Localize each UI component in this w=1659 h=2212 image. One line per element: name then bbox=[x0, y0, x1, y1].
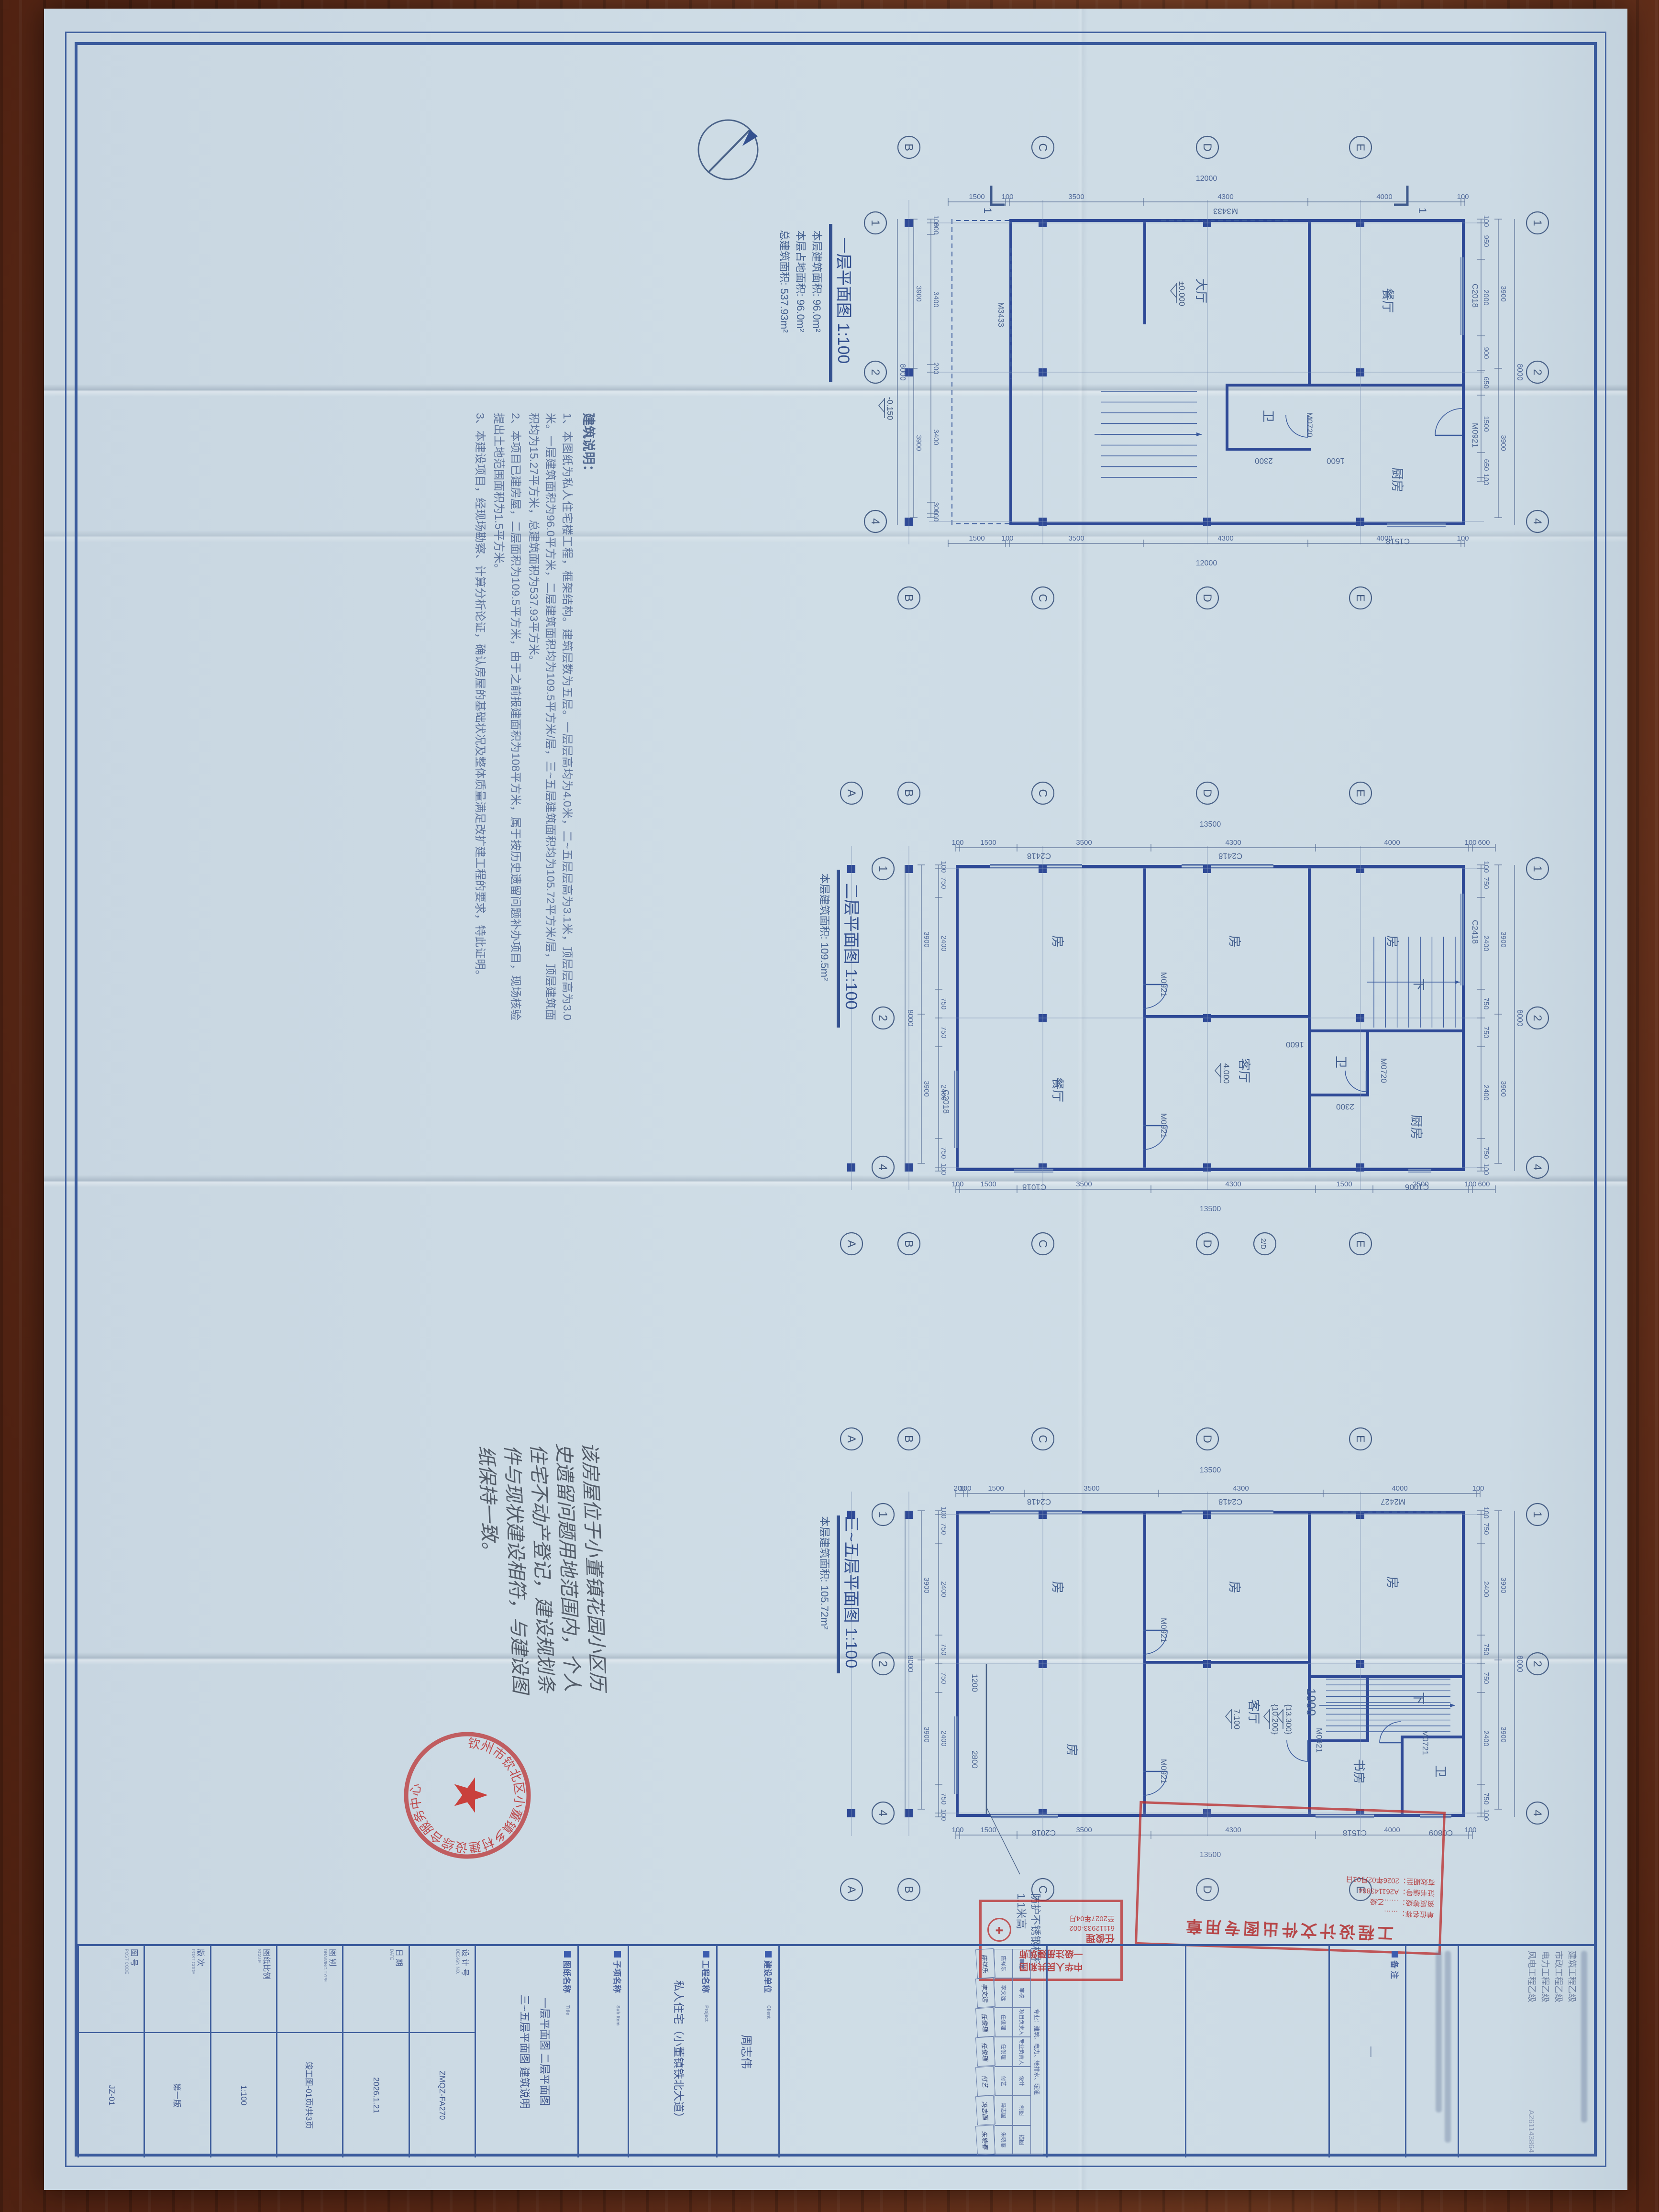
svg-text:房: 房 bbox=[1385, 1576, 1400, 1589]
signature-role: 描图 bbox=[1013, 2125, 1031, 2155]
svg-text:C: C bbox=[1036, 789, 1049, 797]
svg-text:1600: 1600 bbox=[1327, 456, 1345, 465]
svg-text:B: B bbox=[902, 789, 915, 797]
svg-text:750: 750 bbox=[940, 877, 948, 889]
svg-text:750: 750 bbox=[940, 1672, 948, 1684]
svg-text:E: E bbox=[1354, 789, 1367, 797]
svg-text:950: 950 bbox=[1482, 235, 1490, 247]
svg-text:100: 100 bbox=[940, 1809, 948, 1821]
svg-text:M0921: M0921 bbox=[1159, 1113, 1168, 1138]
title-block-row: 图 别DRAWING TYPE 竣工图-01页/共3页 bbox=[276, 1946, 342, 2157]
signature-handwritten: 付艺 bbox=[975, 2066, 995, 2096]
svg-text:3500: 3500 bbox=[1068, 534, 1084, 542]
svg-text:2400: 2400 bbox=[940, 935, 948, 951]
svg-text:2400: 2400 bbox=[940, 1730, 948, 1746]
title-block-row-value: 第一版 bbox=[145, 2033, 210, 2157]
svg-text:-0.150: -0.150 bbox=[885, 397, 895, 420]
building-notes: 建筑说明： 1、本图纸为私人住宅楼工程，框架结构。建筑层数为五层。一层层高均为4… bbox=[470, 413, 599, 1020]
svg-text:A: A bbox=[845, 1240, 858, 1248]
title-block-row: 图纸比例SCALE 1:100 bbox=[210, 1946, 276, 2157]
svg-text:650: 650 bbox=[1482, 459, 1490, 471]
building-note-paragraph: 2、本项目已建房屋，二层面积为109.5平方米，由于之前报建面积为108平方米，… bbox=[490, 413, 524, 1020]
svg-text:餐厅: 餐厅 bbox=[1051, 1077, 1065, 1102]
svg-text:100: 100 bbox=[951, 1826, 963, 1834]
title-block-row-label: 图 号POST CODE bbox=[79, 1946, 144, 2033]
svg-text:100: 100 bbox=[940, 1506, 948, 1518]
svg-text:750: 750 bbox=[940, 1147, 948, 1159]
svg-text:M0721: M0721 bbox=[1421, 1730, 1430, 1755]
svg-text:100: 100 bbox=[1472, 1484, 1484, 1493]
svg-text:8000: 8000 bbox=[898, 364, 907, 381]
svg-text:4000: 4000 bbox=[1376, 193, 1392, 201]
svg-text:卫: 卫 bbox=[1433, 1765, 1448, 1778]
svg-text:{10.200}: {10.200} bbox=[1271, 1704, 1280, 1735]
svg-text:100: 100 bbox=[1457, 193, 1469, 201]
signature-handwritten: 任俊理 bbox=[975, 2007, 995, 2038]
svg-text:4: 4 bbox=[1531, 518, 1544, 524]
title-block-architect-stamp-area bbox=[1046, 1946, 1185, 2157]
svg-text:100: 100 bbox=[1464, 839, 1476, 847]
signature-printed-name: 付艺 bbox=[995, 2067, 1013, 2096]
svg-text:D: D bbox=[1201, 1435, 1214, 1443]
svg-text:12000: 12000 bbox=[1196, 559, 1217, 567]
svg-text:E: E bbox=[1354, 1435, 1367, 1443]
title-block-row: 版 次POST CODE 第一版 bbox=[144, 1946, 210, 2157]
svg-text:3900: 3900 bbox=[1499, 1081, 1507, 1096]
blueprint-sheet: 1009502000900650150065010039003900800010… bbox=[44, 9, 1627, 2190]
title-block-subitem: 子项名称Sub Item bbox=[577, 1946, 628, 2157]
title-block-row-label: 图纸比例SCALE bbox=[211, 1946, 276, 2033]
title-block-row-value: JZ-01 bbox=[79, 2033, 144, 2157]
svg-text:2: 2 bbox=[1531, 1660, 1544, 1667]
signature-handwritten: 任俊理 bbox=[975, 2036, 995, 2067]
signature-role: 审核 bbox=[1013, 1978, 1031, 2007]
title-block-row: 图 号POST CODE JZ-01 bbox=[77, 1946, 144, 2157]
svg-text:房: 房 bbox=[1051, 1581, 1065, 1593]
svg-text:B: B bbox=[902, 144, 915, 151]
round-red-seal: 钦州市钦北区小董镇乡村建设综合服务中心 bbox=[398, 1726, 537, 1865]
svg-text:100: 100 bbox=[1482, 215, 1490, 227]
svg-text:C: C bbox=[1036, 1435, 1049, 1443]
svg-text:{13.300}: {13.300} bbox=[1284, 1704, 1293, 1735]
svg-text:1: 1 bbox=[1531, 1511, 1544, 1517]
svg-text:100: 100 bbox=[951, 1180, 963, 1188]
svg-text:卫: 卫 bbox=[1261, 410, 1275, 422]
svg-text:750: 750 bbox=[940, 1026, 948, 1038]
title-block-project: 工程名称Project 私人住宅（小董镇铁北大道） bbox=[628, 1946, 716, 2157]
svg-text:E: E bbox=[1354, 594, 1367, 602]
svg-text:100: 100 bbox=[1482, 1809, 1490, 1821]
svg-text:100: 100 bbox=[1482, 861, 1490, 873]
floor-plan-2: 1007502400750750240075010039003900800010… bbox=[608, 719, 1565, 1317]
title-block-row-value: 1:100 bbox=[211, 2033, 276, 2157]
svg-text:A: A bbox=[845, 1886, 858, 1893]
svg-text:4: 4 bbox=[876, 1164, 889, 1170]
photo-of-blueprint: { "sheet": { "ink": "#3a5a9c", "wall": "… bbox=[0, 0, 1659, 2212]
svg-text:100: 100 bbox=[1464, 1180, 1476, 1188]
svg-text:3400: 3400 bbox=[932, 429, 940, 445]
svg-text:200: 200 bbox=[932, 362, 940, 374]
svg-text:房: 房 bbox=[1385, 935, 1400, 948]
svg-text:3500: 3500 bbox=[1076, 839, 1092, 847]
title-block-row-value: 2026.1.21 bbox=[343, 2033, 408, 2157]
svg-text:±0.000: ±0.000 bbox=[1177, 281, 1186, 306]
signature-printed-name: 陈祥乐 bbox=[995, 1949, 1013, 1978]
svg-text:M3433: M3433 bbox=[1213, 207, 1238, 216]
svg-text:4300: 4300 bbox=[1225, 1180, 1241, 1188]
svg-text:1: 1 bbox=[876, 865, 889, 872]
svg-text:房: 房 bbox=[1228, 935, 1242, 948]
svg-text:本层建筑面积: 109.5m²: 本层建筑面积: 109.5m² bbox=[818, 874, 830, 981]
svg-text:E: E bbox=[1354, 144, 1367, 151]
signature-handwritten: 陈祥乐 bbox=[975, 1948, 995, 1979]
svg-text:750: 750 bbox=[1482, 997, 1490, 1009]
svg-text:100: 100 bbox=[1464, 1826, 1476, 1834]
svg-text:2400: 2400 bbox=[1482, 935, 1490, 951]
svg-text:本层建筑面积: 96.0m²: 本层建筑面积: 96.0m² bbox=[811, 231, 823, 332]
title-block-row-label: 版 次POST CODE bbox=[145, 1946, 210, 2033]
svg-text:厨房: 厨房 bbox=[1390, 467, 1405, 492]
svg-text:1: 1 bbox=[1416, 208, 1428, 213]
svg-text:3900: 3900 bbox=[1499, 1726, 1507, 1742]
title-block-meta-rows: 设 计 号DESIGN NO. ZMQZ-FA270 日 期DATE 2026.… bbox=[77, 1946, 475, 2157]
qualification-cert-no: A261143864 bbox=[1525, 2110, 1537, 2153]
project-name: 私人住宅（小董镇铁北大道） bbox=[672, 1951, 688, 2153]
svg-text:4: 4 bbox=[876, 1810, 889, 1816]
svg-text:100: 100 bbox=[940, 1163, 948, 1175]
svg-text:下: 下 bbox=[1412, 978, 1426, 991]
svg-text:2: 2 bbox=[1531, 369, 1544, 375]
signature-role: 项目负责人 bbox=[1013, 2008, 1031, 2037]
title-block-qualifications: 建筑工程乙级 市政工程乙级 电力工程乙级 风电工程乙级 A261143864 bbox=[1458, 1946, 1594, 2157]
signature-handwritten: 冯志国 bbox=[975, 2095, 995, 2126]
svg-text:C: C bbox=[1036, 1885, 1049, 1893]
svg-text:厨房: 厨房 bbox=[1409, 1115, 1424, 1139]
svg-text:C1018: C1018 bbox=[1022, 1183, 1046, 1192]
svg-text:M0921: M0921 bbox=[1159, 972, 1168, 997]
svg-text:3900: 3900 bbox=[1499, 435, 1507, 451]
svg-text:600: 600 bbox=[1478, 839, 1490, 847]
svg-text:C2018: C2018 bbox=[1032, 1828, 1056, 1837]
svg-text:100: 100 bbox=[940, 861, 948, 873]
svg-text:C2418: C2418 bbox=[1218, 1497, 1242, 1506]
svg-text:750: 750 bbox=[1482, 1672, 1490, 1684]
svg-text:2300: 2300 bbox=[1336, 1102, 1354, 1111]
svg-text:B: B bbox=[902, 1240, 915, 1248]
signature-role: 审定 bbox=[1013, 1949, 1031, 1978]
svg-text:B: B bbox=[902, 1435, 915, 1443]
svg-text:2400: 2400 bbox=[1482, 1581, 1490, 1597]
svg-text:1: 1 bbox=[1531, 220, 1544, 226]
svg-text:1: 1 bbox=[1531, 865, 1544, 872]
svg-text:A: A bbox=[845, 789, 858, 797]
svg-text:2400: 2400 bbox=[940, 1581, 948, 1597]
svg-text:3500: 3500 bbox=[1084, 1484, 1099, 1493]
seal-star-icon bbox=[454, 1777, 488, 1813]
svg-text:7.100: 7.100 bbox=[1232, 1709, 1241, 1730]
svg-text:B: B bbox=[902, 1886, 915, 1893]
title-block-remark: 备 注 — bbox=[1328, 1946, 1405, 2157]
title-block-row: 设 计 号DESIGN NO. ZMQZ-FA270 bbox=[409, 1946, 475, 2157]
svg-text:C2418: C2418 bbox=[1471, 920, 1480, 944]
svg-text:M0921: M0921 bbox=[1159, 1618, 1168, 1643]
svg-text:C1006: C1006 bbox=[1405, 1183, 1429, 1192]
signature-handwritten: 朱晓春 bbox=[975, 2124, 995, 2155]
svg-text:1600: 1600 bbox=[1286, 1040, 1304, 1049]
svg-text:2000: 2000 bbox=[1482, 289, 1490, 305]
svg-text:13500: 13500 bbox=[1200, 1205, 1221, 1213]
svg-text:4: 4 bbox=[869, 518, 882, 524]
title-block-row-value: 竣工图-01页/共3页 bbox=[277, 2033, 342, 2157]
signature-printed-name: 任俊理 bbox=[995, 2037, 1013, 2066]
svg-text:1500: 1500 bbox=[969, 534, 984, 542]
svg-text:D: D bbox=[1201, 1239, 1214, 1248]
svg-text:E: E bbox=[1354, 1240, 1367, 1248]
svg-text:4000: 4000 bbox=[1392, 1484, 1407, 1493]
svg-text:一层平面图 1:100: 一层平面图 1:100 bbox=[834, 237, 852, 364]
svg-text:4300: 4300 bbox=[1233, 1484, 1249, 1493]
svg-text:100: 100 bbox=[1482, 1163, 1490, 1175]
svg-text:C: C bbox=[1036, 594, 1049, 602]
svg-text:三~五层平面图 1:100: 三~五层平面图 1:100 bbox=[842, 1516, 860, 1668]
svg-text:300: 300 bbox=[932, 222, 940, 234]
svg-text:3900: 3900 bbox=[922, 931, 930, 947]
svg-text:3900: 3900 bbox=[1499, 1577, 1507, 1593]
building-notes-title: 建筑说明： bbox=[580, 413, 599, 1020]
svg-text:750: 750 bbox=[940, 1523, 948, 1535]
svg-text:2400: 2400 bbox=[1482, 1084, 1490, 1100]
svg-text:8000: 8000 bbox=[1515, 1009, 1524, 1027]
svg-text:2: 2 bbox=[869, 369, 882, 375]
svg-text:600: 600 bbox=[1478, 1180, 1490, 1188]
svg-text:4: 4 bbox=[1531, 1810, 1544, 1816]
title-block: 建筑工程乙级 市政工程乙级 电力工程乙级 风电工程乙级 A261143864 备… bbox=[77, 1944, 1594, 2157]
svg-text:C: C bbox=[1036, 143, 1049, 151]
svg-text:C2418: C2418 bbox=[1027, 852, 1051, 861]
svg-text:1: 1 bbox=[982, 208, 994, 213]
svg-text:1200: 1200 bbox=[970, 1674, 979, 1692]
svg-text:1500: 1500 bbox=[988, 1484, 1004, 1493]
svg-text:3900: 3900 bbox=[915, 286, 923, 301]
svg-text:M3433: M3433 bbox=[996, 302, 1006, 327]
svg-text:房: 房 bbox=[1228, 1581, 1242, 1593]
svg-text:750: 750 bbox=[940, 1792, 948, 1804]
architect-stamp-emblem-icon: ✚ bbox=[987, 1918, 1011, 1942]
svg-text:100: 100 bbox=[959, 1484, 971, 1493]
title-block-row-label: 日 期DATE bbox=[343, 1946, 408, 2033]
svg-text:3900: 3900 bbox=[1499, 286, 1507, 301]
svg-text:C2418: C2418 bbox=[1218, 852, 1242, 861]
svg-text:总建筑面积: 537.93m²: 总建筑面积: 537.93m² bbox=[778, 230, 790, 332]
title-block-row-label: 图 别DRAWING TYPE bbox=[277, 1946, 342, 2033]
svg-text:1500: 1500 bbox=[980, 839, 996, 847]
svg-text:3500: 3500 bbox=[1076, 1826, 1092, 1834]
svg-text:100: 100 bbox=[1482, 1506, 1490, 1518]
svg-text:4300: 4300 bbox=[1225, 839, 1241, 847]
svg-text:3400: 3400 bbox=[932, 291, 940, 307]
svg-text:2800: 2800 bbox=[970, 1750, 979, 1769]
svg-text:8000: 8000 bbox=[906, 1655, 914, 1672]
svg-text:750: 750 bbox=[1482, 1792, 1490, 1804]
signature-printed-name: 朱晓春 bbox=[995, 2125, 1013, 2155]
svg-text:C2418: C2418 bbox=[1027, 1497, 1051, 1506]
svg-text:本层占地面积: 96.0m²: 本层占地面积: 96.0m² bbox=[795, 231, 807, 332]
svg-text:8000: 8000 bbox=[1515, 364, 1524, 381]
svg-text:C1518: C1518 bbox=[1386, 537, 1410, 546]
title-block-row-value: ZMQZ-FA270 bbox=[410, 2033, 475, 2157]
svg-text:100: 100 bbox=[932, 509, 940, 521]
title-block-signatures: 专业：建筑、电力、给排水、暖通 审定审核项目负责人专业负责人设计制图描图陈祥乐李… bbox=[778, 1946, 1046, 2157]
title-block-row-label: 设 计 号DESIGN NO. bbox=[410, 1946, 475, 2033]
svg-text:二层平面图 1:100: 二层平面图 1:100 bbox=[842, 883, 860, 1010]
svg-text:房: 房 bbox=[1065, 1744, 1079, 1756]
svg-text:12000: 12000 bbox=[1196, 175, 1217, 183]
svg-text:本层建筑面积: 105.72m²: 本层建筑面积: 105.72m² bbox=[818, 1516, 830, 1629]
svg-text:1500: 1500 bbox=[1336, 1180, 1352, 1188]
svg-text:2: 2 bbox=[876, 1660, 889, 1667]
signature-role: 专业负责人 bbox=[1013, 2037, 1031, 2066]
svg-text:100: 100 bbox=[1001, 193, 1013, 201]
svg-text:D: D bbox=[1201, 789, 1214, 797]
title-block-output-stamp-area bbox=[1185, 1946, 1328, 2157]
svg-text:4300: 4300 bbox=[1217, 534, 1233, 542]
signature-role: 制图 bbox=[1013, 2096, 1031, 2125]
svg-text:750: 750 bbox=[1482, 1147, 1490, 1159]
svg-text:3900: 3900 bbox=[922, 1577, 930, 1593]
title-block-smallprint bbox=[1405, 1946, 1458, 2157]
svg-text:100: 100 bbox=[1457, 534, 1469, 542]
svg-text:1500: 1500 bbox=[980, 1826, 996, 1834]
floor-plan-1: 1009502000900650150065010039003900800010… bbox=[608, 73, 1565, 671]
svg-text:B: B bbox=[902, 594, 915, 602]
svg-text:3500: 3500 bbox=[1068, 193, 1084, 201]
svg-text:M2427: M2427 bbox=[1381, 1497, 1405, 1506]
svg-text:C: C bbox=[1036, 1239, 1049, 1248]
design-output-stamp: 工程设计文件出图专用章 单位名称：…… 资质等级：……乙级 证书编号：A2611… bbox=[1135, 1801, 1446, 1955]
svg-text:1500: 1500 bbox=[1482, 416, 1490, 431]
svg-text:100: 100 bbox=[951, 839, 963, 847]
svg-text:M0921: M0921 bbox=[1159, 1759, 1168, 1784]
svg-text:C2018: C2018 bbox=[941, 1090, 951, 1114]
svg-text:3900: 3900 bbox=[915, 435, 923, 451]
signature-handwritten: 李文远 bbox=[975, 1978, 995, 2008]
svg-text:大厅: 大厅 bbox=[1194, 278, 1208, 303]
svg-text:100: 100 bbox=[1001, 534, 1013, 542]
svg-text:餐厅: 餐厅 bbox=[1381, 288, 1395, 313]
signature-printed-name: 李文远 bbox=[995, 1978, 1013, 2007]
svg-text:下: 下 bbox=[1412, 1692, 1426, 1704]
svg-text:房: 房 bbox=[1051, 935, 1065, 948]
svg-text:2: 2 bbox=[1531, 1015, 1544, 1021]
svg-text:100: 100 bbox=[1482, 473, 1490, 485]
svg-text:8000: 8000 bbox=[906, 1009, 914, 1027]
svg-text:2300: 2300 bbox=[1255, 456, 1273, 465]
title-block-client: 建设单位Client 周志伟 bbox=[716, 1946, 778, 2157]
svg-text:M0720: M0720 bbox=[1379, 1058, 1388, 1083]
svg-text:13500: 13500 bbox=[1200, 1466, 1221, 1474]
svg-text:A: A bbox=[845, 1435, 858, 1443]
svg-text:4: 4 bbox=[1531, 1164, 1544, 1170]
title-block-row: 日 期DATE 2026.1.21 bbox=[342, 1946, 408, 2157]
svg-text:8000: 8000 bbox=[1515, 1655, 1524, 1672]
svg-text:D: D bbox=[1201, 143, 1214, 151]
svg-text:13500: 13500 bbox=[1200, 820, 1221, 829]
svg-text:1500: 1500 bbox=[969, 193, 984, 201]
signature-printed-name: 冯志国 bbox=[995, 2096, 1013, 2125]
svg-text:4.000: 4.000 bbox=[1222, 1063, 1231, 1084]
title-block-sheetname: 图纸名称Title 一层平面图 二层平面图 三~五层平面图 建筑说明 bbox=[475, 1946, 577, 2157]
signature-printed-name: 任俊理 bbox=[995, 2008, 1013, 2037]
svg-text:2/D: 2/D bbox=[1259, 1238, 1267, 1250]
svg-text:2400: 2400 bbox=[1482, 1730, 1490, 1746]
svg-text:书房: 书房 bbox=[1352, 1759, 1366, 1784]
svg-text:750: 750 bbox=[1482, 877, 1490, 889]
svg-text:客厅: 客厅 bbox=[1237, 1058, 1251, 1083]
svg-text:750: 750 bbox=[1482, 1523, 1490, 1535]
building-note-paragraph: 3、本建设项目，经现场勘察、计算分析论证，确认房屋的基础状况及整体质量满足改扩建… bbox=[472, 413, 488, 1020]
svg-text:D: D bbox=[1201, 594, 1214, 602]
svg-text:M0720: M0720 bbox=[1305, 412, 1314, 437]
svg-text:2: 2 bbox=[876, 1015, 889, 1021]
svg-text:M0921: M0921 bbox=[1315, 1728, 1324, 1753]
svg-text:750: 750 bbox=[940, 997, 948, 1009]
svg-text:1500: 1500 bbox=[980, 1180, 996, 1188]
svg-text:1900: 1900 bbox=[1304, 1688, 1318, 1716]
svg-text:750: 750 bbox=[1482, 1643, 1490, 1655]
svg-text:M0921: M0921 bbox=[1471, 423, 1480, 448]
client-name: 周志伟 bbox=[739, 1951, 756, 2153]
svg-text:650: 650 bbox=[1482, 376, 1490, 388]
svg-text:750: 750 bbox=[1482, 1026, 1490, 1038]
svg-text:3900: 3900 bbox=[922, 1081, 930, 1096]
svg-text:750: 750 bbox=[940, 1643, 948, 1655]
svg-text:3900: 3900 bbox=[922, 1726, 930, 1742]
svg-text:1: 1 bbox=[876, 1511, 889, 1517]
svg-text:4000: 4000 bbox=[1384, 839, 1400, 847]
svg-text:1: 1 bbox=[869, 220, 882, 226]
svg-text:3900: 3900 bbox=[1499, 931, 1507, 947]
building-note-paragraph: 1、本图纸为私人住宅楼工程，框架结构。建筑层数为五层。一层层高均为4.0米，二~… bbox=[526, 413, 575, 1020]
svg-text:3500: 3500 bbox=[1076, 1180, 1092, 1188]
svg-text:客厅: 客厅 bbox=[1247, 1699, 1261, 1724]
svg-text:900: 900 bbox=[1482, 347, 1490, 359]
svg-text:C2018: C2018 bbox=[1471, 284, 1480, 308]
svg-text:4300: 4300 bbox=[1217, 193, 1233, 201]
signature-role: 设计 bbox=[1013, 2067, 1031, 2096]
svg-text:卫: 卫 bbox=[1334, 1056, 1348, 1068]
